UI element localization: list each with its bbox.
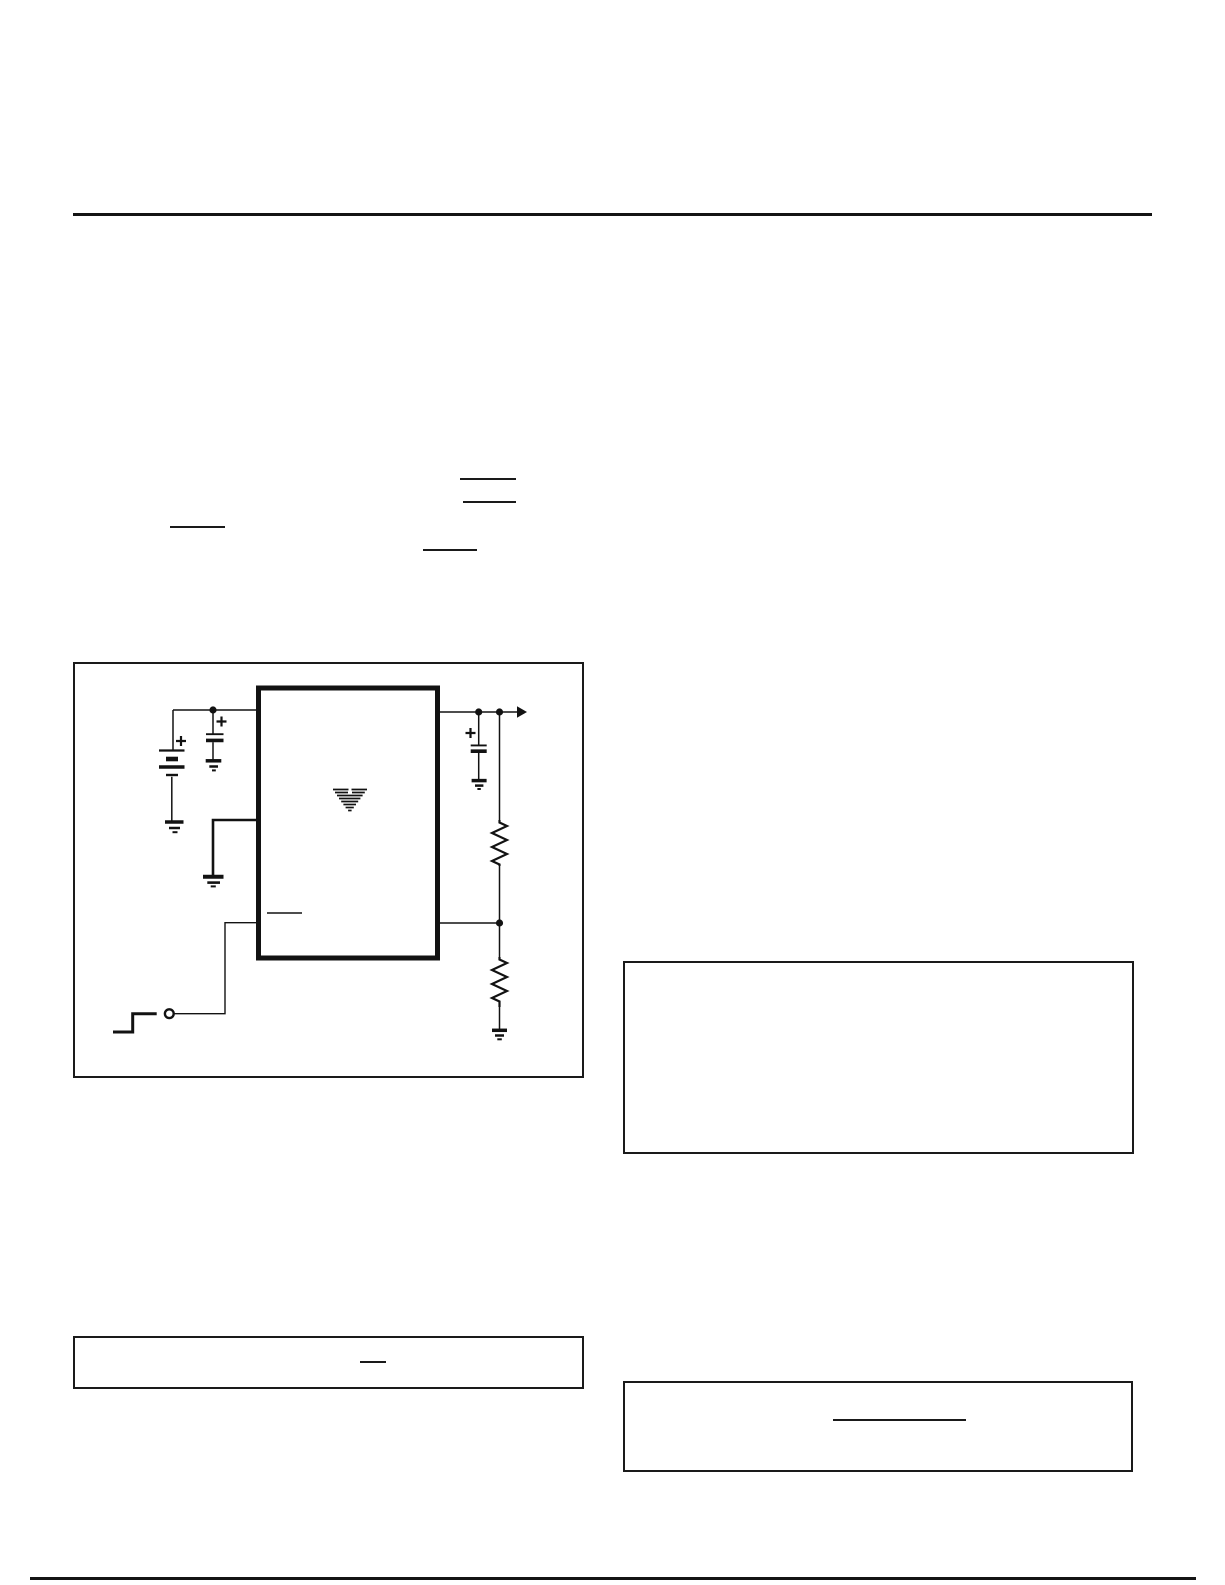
lower-right-panel — [623, 1381, 1133, 1472]
lower-left-panel — [73, 1336, 584, 1389]
page: { "page": { "type": "datasheet-document-… — [0, 0, 1225, 1585]
bottom-footer-rule — [30, 1577, 1196, 1580]
regulator-ic-body — [259, 688, 438, 958]
input-terminal-circle — [165, 1009, 174, 1018]
top-header-rule — [73, 213, 1152, 216]
lower-right-panel-overbar — [833, 1419, 966, 1421]
overbar-stroke-1 — [460, 478, 516, 480]
overbar-stroke-3 — [170, 526, 225, 528]
right-empty-panel — [623, 961, 1134, 1154]
lower-left-panel-overbar — [360, 1361, 386, 1363]
application-circuit-figure — [73, 662, 584, 1078]
overbar-stroke-4 — [423, 549, 477, 551]
overbar-stroke-2 — [463, 501, 516, 503]
